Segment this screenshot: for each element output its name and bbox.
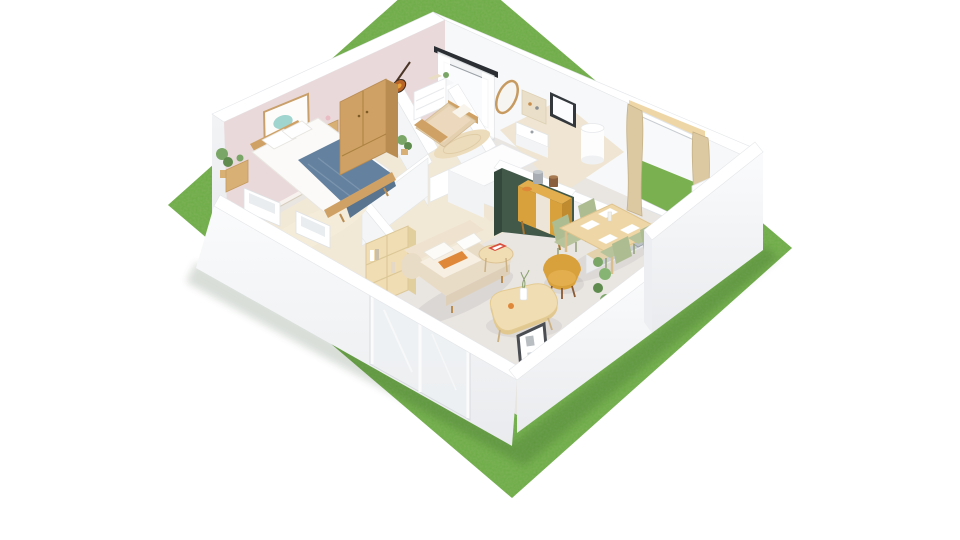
- floorplan-render: [0, 0, 960, 540]
- leaves: [593, 283, 603, 293]
- bottle: [535, 106, 539, 110]
- pot-brown-top: [549, 175, 558, 179]
- heater-top: [581, 124, 604, 133]
- partition-end-cap: [494, 168, 502, 236]
- wardrobe-side: [386, 79, 398, 158]
- plant: [237, 155, 244, 162]
- vase: [520, 288, 527, 300]
- bowl: [508, 303, 514, 309]
- leg: [485, 258, 486, 272]
- book: [375, 249, 379, 260]
- wall-step-edge: [644, 230, 652, 333]
- armchair-seat: [548, 270, 576, 286]
- faucet: [531, 131, 534, 134]
- flowers: [326, 116, 331, 121]
- knob: [358, 115, 361, 118]
- floorplan-svg: [0, 0, 960, 540]
- plant: [443, 72, 449, 78]
- leg: [506, 258, 507, 272]
- bottle: [608, 212, 612, 221]
- knob: [366, 111, 369, 114]
- poster-photo: [525, 335, 534, 346]
- bottle: [528, 102, 532, 106]
- book: [391, 262, 395, 273]
- pot-grey-top: [533, 170, 543, 174]
- leaves: [404, 142, 412, 150]
- curtain-left: [627, 104, 643, 216]
- orange-bowl: [522, 187, 532, 191]
- water-heater: [581, 124, 604, 165]
- leaves: [593, 257, 603, 267]
- heater-bottom: [581, 156, 604, 165]
- center-panel: [536, 193, 550, 234]
- book: [370, 250, 374, 261]
- pot: [401, 149, 408, 155]
- leaves: [223, 157, 233, 167]
- leaves: [599, 268, 611, 280]
